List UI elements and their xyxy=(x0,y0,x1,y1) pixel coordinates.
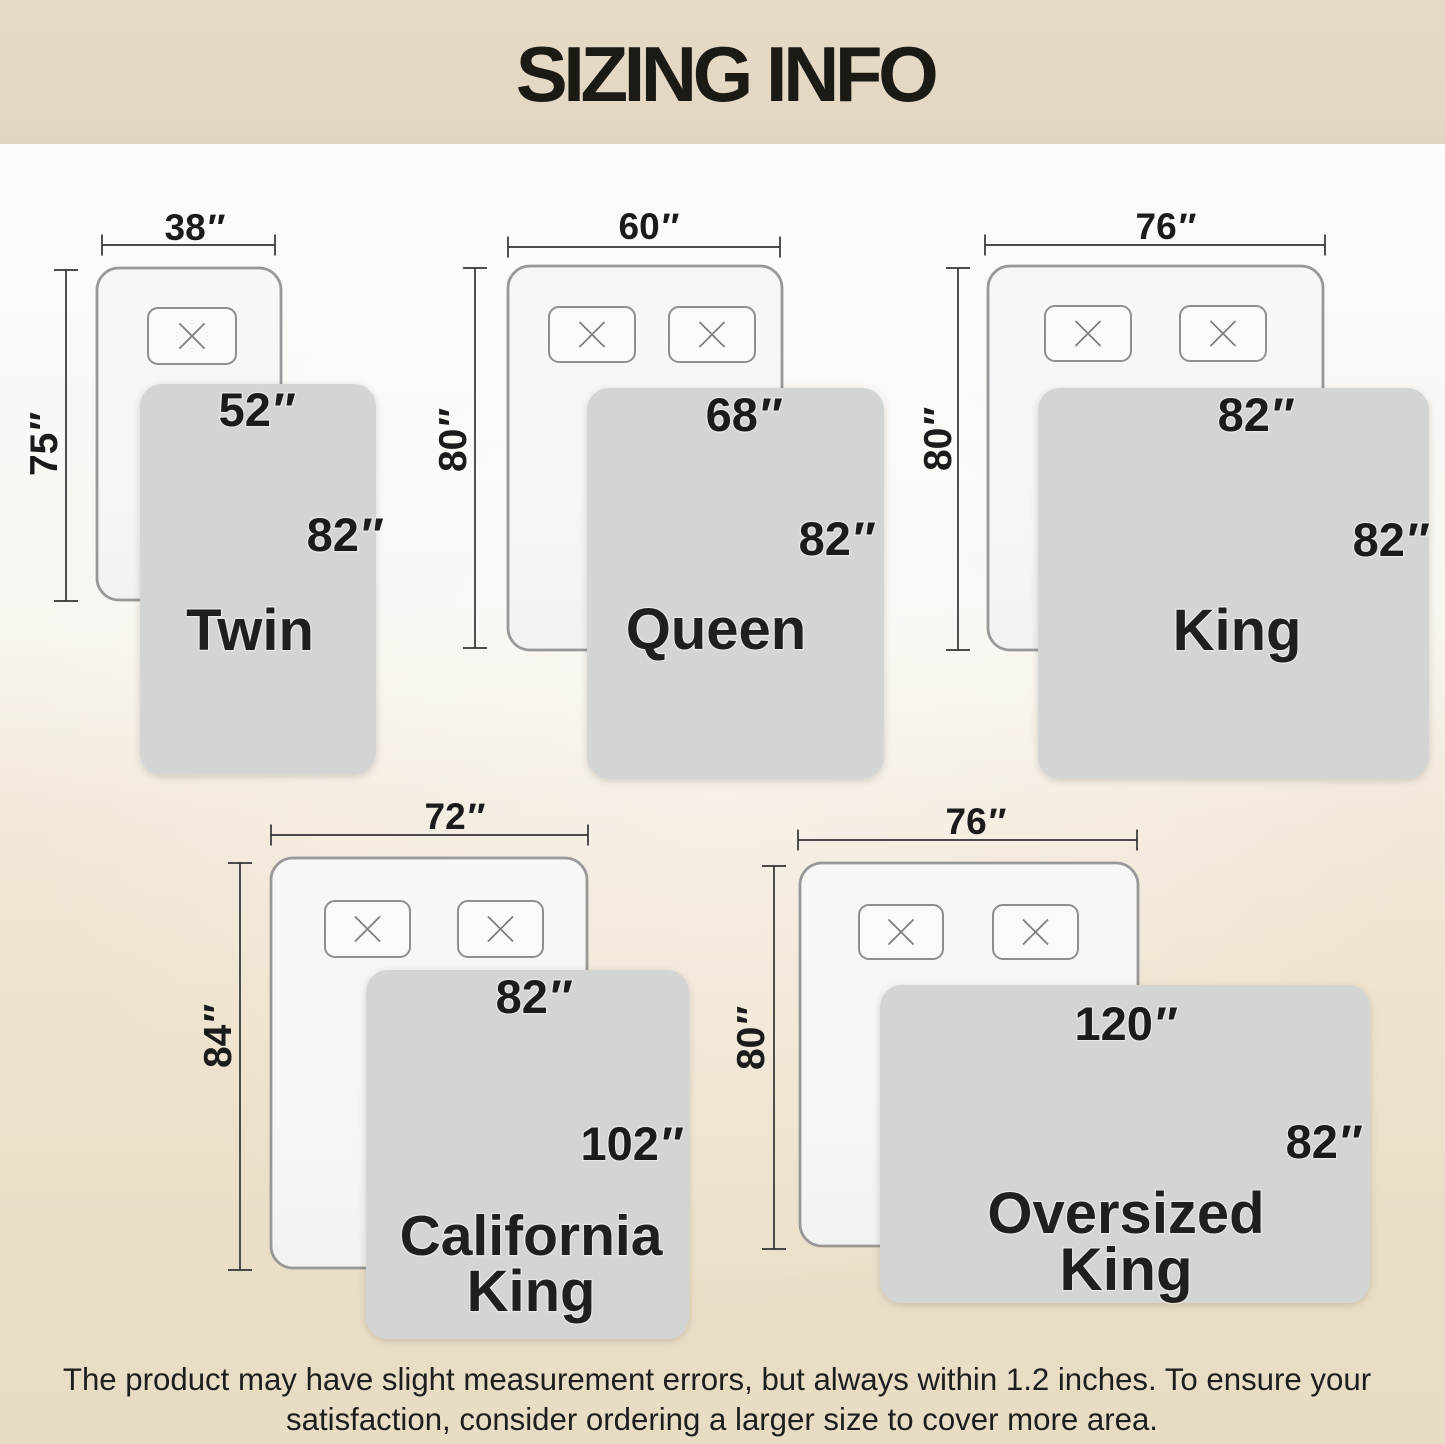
svg-text:72″: 72″ xyxy=(425,796,486,837)
svg-text:80″: 80″ xyxy=(917,407,960,471)
svg-text:60″: 60″ xyxy=(619,206,680,247)
svg-text:82″: 82″ xyxy=(496,970,573,1023)
svg-text:80″: 80″ xyxy=(730,1006,773,1070)
svg-text:King: King xyxy=(1173,598,1302,663)
svg-text:Twin: Twin xyxy=(186,598,314,663)
svg-text:120″: 120″ xyxy=(1075,997,1178,1050)
svg-text:68″: 68″ xyxy=(706,388,783,441)
svg-text:52″: 52″ xyxy=(219,383,296,436)
svg-text:82″: 82″ xyxy=(1218,388,1295,441)
svg-text:80″: 80″ xyxy=(432,408,475,472)
svg-text:38″: 38″ xyxy=(165,207,226,248)
svg-text:Queen: Queen xyxy=(626,597,807,662)
svg-text:SIZING INFO: SIZING INFO xyxy=(516,30,936,118)
svg-text:82″: 82″ xyxy=(799,512,876,565)
svg-text:King: King xyxy=(467,1259,596,1324)
svg-text:76″: 76″ xyxy=(946,801,1007,842)
svg-text:82″: 82″ xyxy=(1353,513,1430,566)
svg-text:satisfaction, consider orderin: satisfaction, consider ordering a larger… xyxy=(286,1402,1158,1437)
svg-text:King: King xyxy=(1059,1236,1192,1303)
svg-text:82″: 82″ xyxy=(307,508,384,561)
svg-text:76″: 76″ xyxy=(1136,206,1197,247)
svg-text:84″: 84″ xyxy=(197,1004,240,1068)
svg-text:The product may have slight me: The product may have slight measurement … xyxy=(63,1362,1371,1397)
svg-text:102″: 102″ xyxy=(581,1117,684,1170)
svg-text:82″: 82″ xyxy=(1286,1115,1363,1168)
svg-text:75″: 75″ xyxy=(23,412,66,476)
